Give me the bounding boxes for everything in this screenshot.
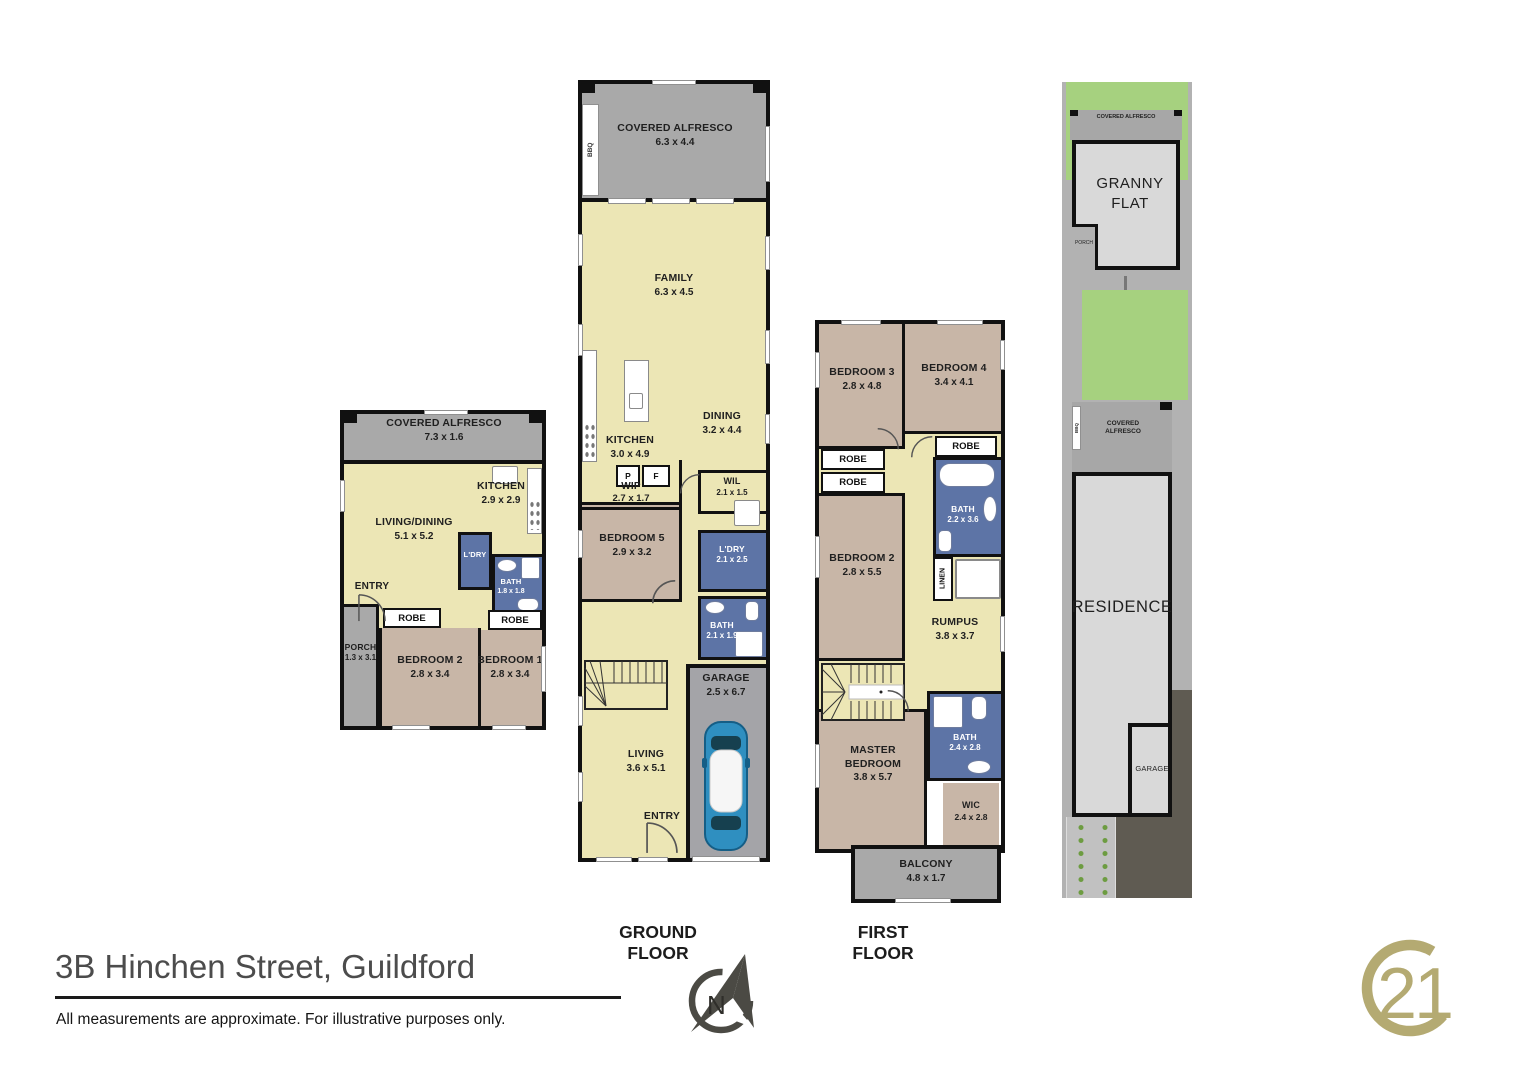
window bbox=[765, 236, 770, 270]
gf-covered-alfresco bbox=[344, 414, 542, 464]
window bbox=[578, 234, 583, 266]
site-bbq-bench: BBQ bbox=[1072, 406, 1081, 450]
window bbox=[392, 725, 430, 730]
g-kitchen-island bbox=[624, 360, 649, 422]
gf-robe-right: ROBE bbox=[488, 610, 542, 630]
f-bath-top-toilet bbox=[938, 530, 952, 552]
gf-porch bbox=[344, 604, 379, 726]
gf-living-dims: 5.1 x 5.2 bbox=[395, 530, 434, 543]
window bbox=[578, 530, 583, 558]
window bbox=[815, 744, 820, 788]
wall-corner bbox=[1070, 110, 1078, 116]
site-path-marker bbox=[1124, 276, 1127, 290]
gf-bedroom-2 bbox=[379, 628, 481, 726]
compass-n-label: N bbox=[707, 990, 726, 1020]
f-robe1-label: ROBE bbox=[839, 454, 866, 465]
f-robe-3: ROBE bbox=[935, 436, 997, 457]
wall-corner bbox=[753, 84, 766, 93]
window bbox=[541, 646, 546, 692]
window bbox=[578, 772, 583, 802]
window bbox=[937, 320, 983, 325]
g-laundry bbox=[698, 530, 766, 592]
sliding-door bbox=[608, 198, 646, 204]
gf-kitchen-sink bbox=[492, 466, 518, 484]
g-dining-label: DINING bbox=[703, 410, 741, 424]
title-divider bbox=[55, 996, 621, 999]
g-fridge-box: F bbox=[642, 465, 670, 487]
f-bath-bottom-toilet bbox=[971, 696, 987, 720]
gf-robe-left: ROBE bbox=[383, 608, 441, 628]
g-kitchen-bench bbox=[582, 350, 597, 462]
gf-robe-left-label: ROBE bbox=[398, 613, 425, 624]
floorplan-page: COVERED ALFRESCO 7.3 x 1.6 KITCHEN 2.9 x… bbox=[0, 0, 1528, 1080]
g-living-dims: 3.6 x 5.1 bbox=[627, 762, 666, 775]
wall-corner bbox=[344, 414, 357, 423]
window bbox=[1000, 340, 1005, 370]
wall-corner bbox=[582, 84, 595, 93]
site-porch bbox=[1072, 224, 1098, 270]
window bbox=[765, 414, 770, 444]
g-entry-door-arc bbox=[646, 822, 678, 854]
g-bath-toilet bbox=[745, 601, 759, 621]
g-family-dims: 6.3 x 4.5 bbox=[655, 286, 694, 299]
f-bedroom-2 bbox=[819, 493, 905, 661]
g-pantry-box: P bbox=[616, 465, 640, 487]
window bbox=[765, 330, 770, 364]
window bbox=[652, 80, 696, 85]
site-garden-path bbox=[1066, 817, 1116, 898]
f-robe-1: ROBE bbox=[821, 449, 885, 470]
window bbox=[596, 857, 632, 862]
century21-logo: 21 bbox=[1350, 938, 1468, 1050]
site-lawn-mid bbox=[1082, 290, 1188, 400]
window bbox=[492, 725, 526, 730]
f-balcony bbox=[851, 845, 1001, 903]
gf-entry-door-arc bbox=[358, 594, 386, 622]
window bbox=[841, 320, 881, 325]
f-bath-top-tub bbox=[939, 463, 995, 487]
f-bedroom-4 bbox=[905, 324, 1001, 434]
ground-floor-plan: BBQ COVERED ALFRESCO 6.3 x 4.4 FAMILY 6.… bbox=[578, 80, 770, 862]
f-linen-label: LINEN bbox=[935, 559, 951, 599]
site-plan: COVERED ALFRESCO GRANNY FLAT PORCH BBQ C… bbox=[1062, 82, 1192, 898]
window bbox=[895, 898, 951, 903]
site-residence bbox=[1072, 472, 1172, 817]
g-living-label: LIVING bbox=[628, 748, 664, 762]
gf-bath-shower bbox=[521, 557, 540, 579]
f-bath-bottom-shower bbox=[933, 696, 963, 728]
g-bath-sink bbox=[705, 601, 725, 614]
site-bbq-label: BBQ bbox=[1073, 407, 1080, 449]
page-title: 3B Hinchen Street, Guildford bbox=[55, 948, 475, 986]
gf-bath-sink bbox=[497, 559, 517, 572]
site-garage bbox=[1128, 723, 1168, 813]
garage-door-opening bbox=[692, 856, 760, 862]
gf-laundry bbox=[458, 532, 492, 590]
site-residence-alfresco bbox=[1072, 402, 1172, 472]
gf-entry-label: ENTRY bbox=[355, 580, 390, 593]
wall-corner bbox=[1174, 110, 1182, 116]
window bbox=[638, 857, 668, 862]
f-robe3-label: ROBE bbox=[952, 441, 979, 452]
g-dining-dims: 3.2 x 4.4 bbox=[703, 424, 742, 437]
f-bath-top-vanity bbox=[983, 496, 997, 522]
f-bath-bottom-vanity bbox=[967, 760, 991, 774]
g-kitchen-dims: 3.0 x 4.9 bbox=[611, 448, 650, 461]
g-covered-alfresco bbox=[582, 84, 766, 202]
f-master-bedroom bbox=[819, 709, 927, 849]
wall-corner bbox=[1160, 402, 1172, 410]
g-pantry-label: P bbox=[625, 471, 631, 481]
gf-bedroom-1 bbox=[481, 630, 542, 726]
f-robe-2: ROBE bbox=[821, 472, 885, 493]
window bbox=[340, 480, 345, 512]
g-stairs bbox=[584, 660, 668, 710]
f-wic bbox=[943, 783, 999, 849]
g-appliance bbox=[734, 500, 760, 526]
g-family-label: FAMILY bbox=[655, 272, 694, 286]
gf-living-label: LIVING/DINING bbox=[375, 516, 452, 530]
gf-robe-right-label: ROBE bbox=[501, 615, 528, 626]
f-shower bbox=[955, 559, 1001, 599]
f-bed3-door-arc bbox=[877, 428, 899, 450]
window bbox=[765, 126, 770, 182]
f-linen: LINEN bbox=[933, 557, 953, 601]
disclaimer-text: All measurements are approximate. For il… bbox=[56, 1011, 505, 1029]
f-rumpus-label: RUMPUS bbox=[932, 616, 979, 630]
bbq-bench: BBQ bbox=[582, 104, 599, 196]
window bbox=[578, 324, 583, 356]
f-rumpus-dims: 3.8 x 3.7 bbox=[936, 630, 975, 643]
site-granny-alfresco bbox=[1070, 110, 1182, 140]
g-wil-door-arc bbox=[680, 474, 700, 494]
window bbox=[578, 696, 583, 726]
sliding-door bbox=[696, 198, 734, 204]
first-floor-caption: FIRST FLOOR bbox=[828, 922, 938, 964]
g-bbq-label: BBQ bbox=[583, 105, 598, 195]
first-floor-plan: BEDROOM 3 2.8 x 4.8 BEDROOM 4 3.4 x 4.1 … bbox=[815, 320, 1005, 853]
wall-corner bbox=[529, 414, 542, 423]
f-master-door-arc bbox=[887, 690, 909, 712]
gf-kitchen-bench bbox=[527, 468, 542, 534]
granny-flat-plan: COVERED ALFRESCO 7.3 x 1.6 KITCHEN 2.9 x… bbox=[340, 410, 546, 730]
compass-north-icon: N bbox=[683, 944, 761, 1038]
gf-kitchen-dims: 2.9 x 2.9 bbox=[482, 494, 521, 507]
sliding-door bbox=[652, 198, 690, 204]
f-bed4-door-arc bbox=[911, 436, 933, 458]
window bbox=[424, 410, 468, 415]
g-car bbox=[702, 718, 750, 854]
g-kitchen-label: KITCHEN bbox=[606, 434, 654, 448]
site-driveway bbox=[1116, 817, 1192, 898]
window bbox=[815, 536, 820, 578]
window bbox=[815, 352, 820, 388]
g-bath-shower bbox=[735, 631, 763, 657]
century21-number: 21 bbox=[1377, 954, 1451, 1034]
g-fridge-label: F bbox=[653, 471, 658, 481]
f-robe2-label: ROBE bbox=[839, 477, 866, 488]
g-bed5-door-arc bbox=[652, 580, 676, 604]
window bbox=[1000, 616, 1005, 652]
